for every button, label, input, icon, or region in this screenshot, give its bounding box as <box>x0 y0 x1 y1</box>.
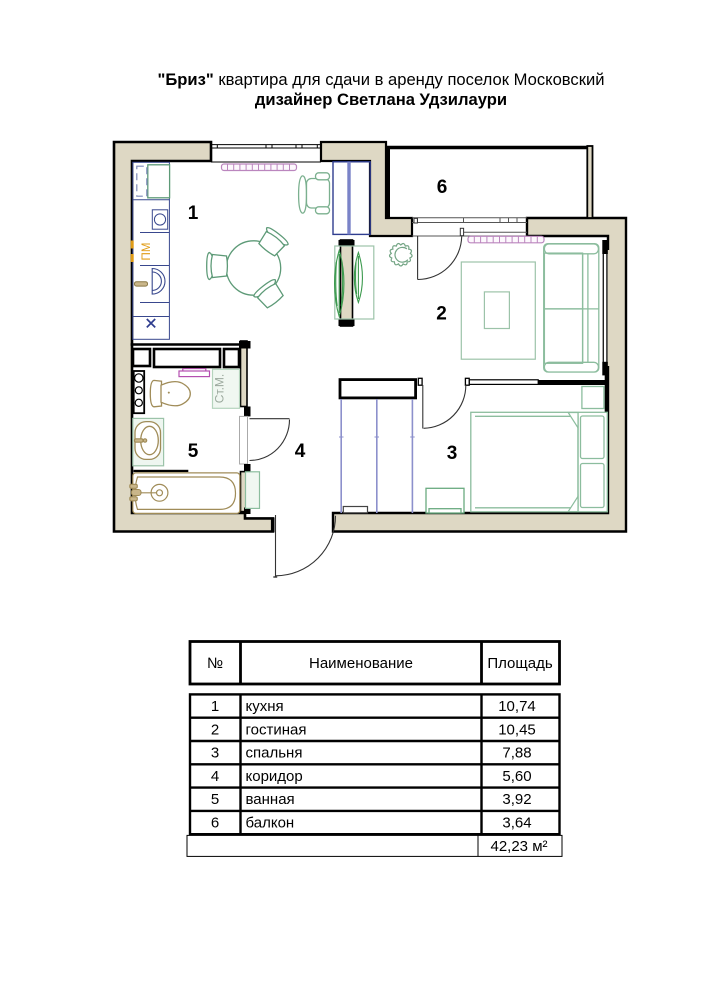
svg-text:№: № <box>207 655 223 672</box>
svg-text:Площадь: Площадь <box>487 655 552 672</box>
svg-text:3: 3 <box>211 745 219 762</box>
svg-text:4: 4 <box>295 441 306 462</box>
svg-text:5: 5 <box>188 441 199 462</box>
svg-text:ПМ: ПМ <box>141 243 153 261</box>
svg-text:1: 1 <box>188 203 199 224</box>
svg-text:7,88: 7,88 <box>502 745 531 762</box>
svg-text:гостиная: гостиная <box>246 721 307 738</box>
svg-text:42,23 м²: 42,23 м² <box>490 838 547 855</box>
svg-text:10,45: 10,45 <box>498 721 536 738</box>
svg-text:балкон: балкон <box>246 815 295 832</box>
svg-text:"Бриз" квартира для сдачи в ар: "Бриз" квартира для сдачи в аренду посел… <box>157 70 604 89</box>
svg-text:4: 4 <box>211 768 219 785</box>
svg-text:кухня: кухня <box>246 698 284 715</box>
svg-text:6: 6 <box>437 177 448 198</box>
svg-text:спальня: спальня <box>246 745 303 762</box>
svg-text:Наименование: Наименование <box>309 655 413 672</box>
svg-text:10,74: 10,74 <box>498 698 536 715</box>
svg-text:5,60: 5,60 <box>502 768 531 785</box>
svg-text:дизайнер Светлана Удзилаури: дизайнер Светлана Удзилаури <box>255 90 507 109</box>
svg-text:2: 2 <box>211 721 219 738</box>
svg-text:1: 1 <box>211 698 219 715</box>
svg-text:3,92: 3,92 <box>502 791 531 808</box>
svg-text:коридор: коридор <box>246 768 303 785</box>
svg-text:Ст.М.: Ст.М. <box>213 374 227 404</box>
svg-text:3: 3 <box>447 443 458 464</box>
svg-text:5: 5 <box>211 791 219 808</box>
svg-text:3,64: 3,64 <box>502 815 531 832</box>
svg-text:2: 2 <box>436 304 447 325</box>
svg-text:ванная: ванная <box>246 791 295 808</box>
svg-text:6: 6 <box>211 815 219 832</box>
